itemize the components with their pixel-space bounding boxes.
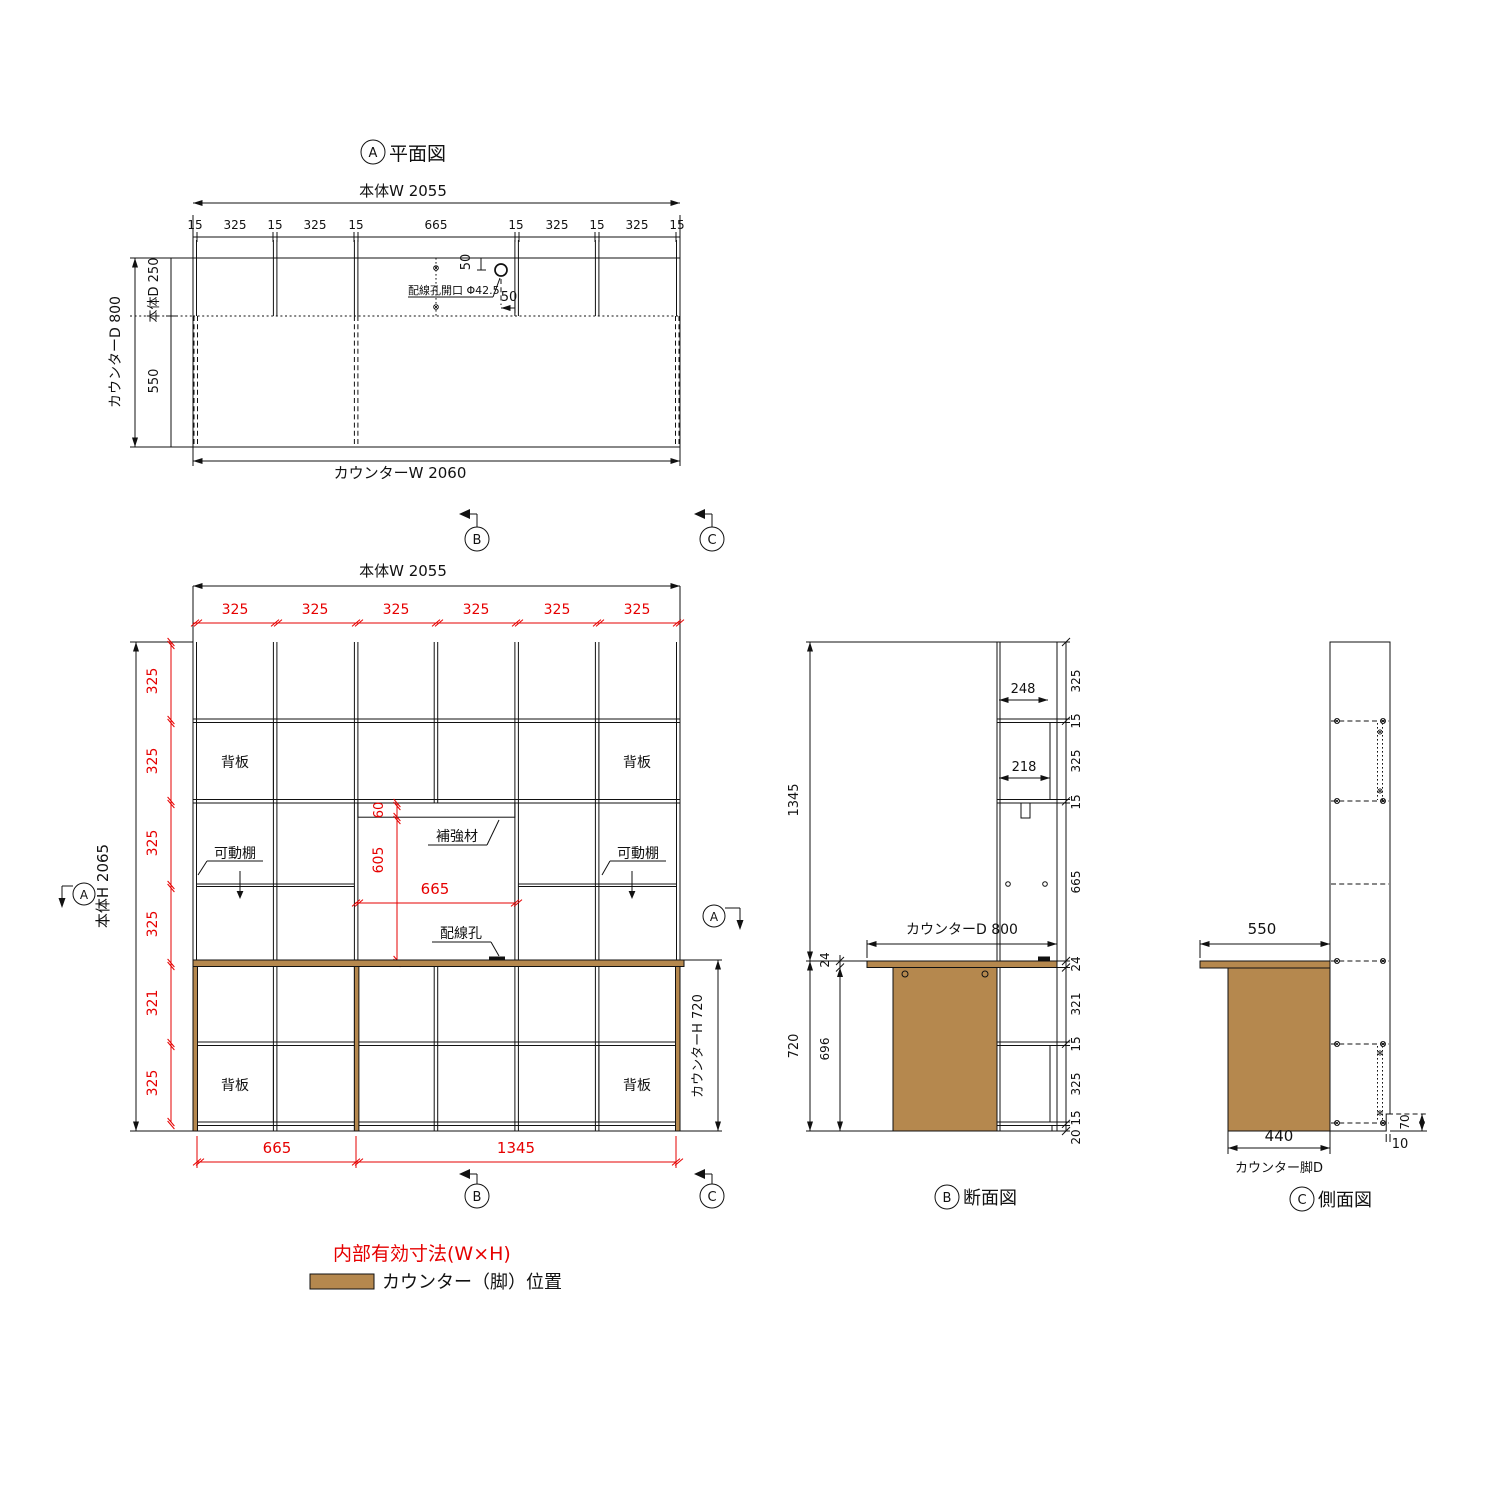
b-counter-leg <box>867 957 1057 1132</box>
svg-text:321: 321 <box>1069 993 1083 1016</box>
svg-text:325: 325 <box>383 602 410 618</box>
wiring-hole-opening-label: 配線孔開口 Φ42.5 <box>408 283 500 297</box>
counter-front-depth-dim: 550 <box>147 369 162 394</box>
svg-text:321: 321 <box>145 990 161 1017</box>
elev-section-markers: B C <box>459 1169 724 1208</box>
marker-a-right: A <box>710 910 719 924</box>
plan-title-text: 平面図 <box>389 143 446 165</box>
depth-218-dim: 218 <box>1012 760 1037 775</box>
plan-wiring-hole: 50 50 配線孔開口 Φ42.5 <box>408 254 517 313</box>
b-counter-depth: カウンターD 800 <box>867 922 1057 958</box>
bottom-right-dim: 1345 <box>497 1139 535 1157</box>
opening-width-dim: 665 <box>421 880 450 898</box>
c-overhang-value: 550 <box>1248 920 1277 938</box>
svg-text:15: 15 <box>1069 794 1083 809</box>
b-title-text: 断面図 <box>963 1188 1017 1209</box>
svg-text:325: 325 <box>302 602 329 618</box>
marker-a-right-arrow-icon <box>737 920 744 930</box>
section-b-view: 248 218 カウンターD 800 1345 720 24 696 <box>787 638 1083 1209</box>
wiring-hole-label: 配線孔 <box>440 926 482 942</box>
svg-text:665: 665 <box>425 218 448 232</box>
section-c-arrow-icon <box>694 509 705 519</box>
section-b-arrow2-icon <box>459 1169 470 1179</box>
c-counter-leg <box>1200 961 1330 1131</box>
b-title-letter: B <box>943 1191 952 1206</box>
section-c-marker2: C <box>707 1190 716 1205</box>
svg-text:15: 15 <box>1069 1036 1083 1051</box>
svg-text:325: 325 <box>1069 670 1083 693</box>
section-c-arrow2-icon <box>694 1169 705 1179</box>
plan-body-width-label: 本体W 2055 <box>359 182 447 200</box>
elev-wiring-hole: 配線孔 <box>432 926 505 961</box>
svg-text:325: 325 <box>546 218 569 232</box>
svg-text:325: 325 <box>1069 1073 1083 1096</box>
c-leg-depth-dim: 440 カウンター脚D <box>1228 1127 1330 1176</box>
svg-text:15: 15 <box>589 218 604 232</box>
legend: 内部有効寸法(W×H) カウンター（脚）位置 <box>310 1243 562 1293</box>
b-title: B 断面図 <box>935 1185 1017 1209</box>
marker-a-left-arrow-icon <box>59 898 66 908</box>
c-title-letter: C <box>1297 1193 1306 1208</box>
side-c-view: 550 440 カウンター脚D 70 10 C 側面図 <box>1200 642 1427 1211</box>
back-panel-label-4: 背板 <box>623 1078 651 1094</box>
plan-view: A 平面図 本体W 2055 15 325 15 325 15 665 15 3… <box>108 140 724 551</box>
svg-text:325: 325 <box>145 1070 161 1097</box>
plan-section-markers: B C <box>459 509 724 551</box>
c-notch-height-dim: 70 <box>1398 1114 1412 1129</box>
svg-text:15: 15 <box>508 218 523 232</box>
legend-counter-pos-note: カウンター（脚）位置 <box>382 1272 562 1293</box>
depth-248-dim: 248 <box>1011 682 1036 697</box>
drawing-sheet: A 平面図 本体W 2055 15 325 15 325 15 665 15 3… <box>0 0 1500 1500</box>
body-height-label: 本体H 2065 <box>94 844 112 928</box>
section-c-marker: C <box>707 533 716 548</box>
svg-text:325: 325 <box>145 830 161 857</box>
svg-text:325: 325 <box>463 602 490 618</box>
plan-depth-dims: カウンターD 800 本体D 250 550 <box>108 258 193 447</box>
back-panel-label-3: 背板 <box>221 1078 249 1094</box>
reinforcement-label: 補強材 <box>436 829 478 845</box>
front-elevation: 本体W 2055 325 325 325 325 325 325 <box>59 562 744 1208</box>
plan-hidden-legs <box>194 316 679 447</box>
elev-bottom-dims: 665 1345 <box>193 1136 683 1168</box>
b-column <box>997 642 1057 1131</box>
elev-counter-height: カウンターH 720 <box>680 960 722 1131</box>
svg-text:325: 325 <box>224 218 247 232</box>
svg-text:665: 665 <box>1069 871 1083 894</box>
b-upper-total-dim: 1345 <box>787 783 802 816</box>
c-leg-depth-label: カウンター脚D <box>1235 1160 1323 1176</box>
svg-text:325: 325 <box>145 748 161 775</box>
b-leg-h-dim: 696 <box>818 1038 832 1061</box>
marker-a-left: A <box>80 888 89 902</box>
opening-height-dim: 605 <box>371 847 387 874</box>
c-leg-depth-value: 440 <box>1265 1127 1294 1145</box>
svg-text:20: 20 <box>1069 1129 1083 1144</box>
movable-shelf-label-1: 可動棚 <box>214 846 256 862</box>
counter-width-label: カウンターW 2060 <box>334 464 467 482</box>
svg-text:325: 325 <box>304 218 327 232</box>
back-panel-label-1: 背板 <box>221 755 249 771</box>
svg-text:15: 15 <box>267 218 282 232</box>
b-wiring-hole-icon <box>1038 957 1050 962</box>
svg-text:325: 325 <box>1069 750 1083 773</box>
svg-text:325: 325 <box>145 668 161 695</box>
svg-text:325: 325 <box>624 602 651 618</box>
legend-counter-swatch <box>310 1274 374 1289</box>
svg-text:15: 15 <box>187 218 202 232</box>
svg-text:15: 15 <box>348 218 363 232</box>
c-side-panel <box>1330 642 1390 1131</box>
c-title-text: 側面図 <box>1318 1190 1372 1211</box>
section-b-marker: B <box>473 533 482 548</box>
elev-back-panels: 背板 背板 背板 背板 <box>197 723 677 1123</box>
svg-text:325: 325 <box>222 602 249 618</box>
technical-drawing: A 平面図 本体W 2055 15 325 15 325 15 665 15 3… <box>0 0 1500 1500</box>
b-counter-h-dim: 720 <box>787 1034 802 1059</box>
section-b-arrow-icon <box>459 509 470 519</box>
c-notch-depth-dim: 10 <box>1392 1137 1409 1152</box>
svg-text:325: 325 <box>145 911 161 938</box>
plan-counter-width: カウンターW 2060 <box>193 447 680 482</box>
elev-col-dims: 325 325 325 325 325 325 <box>222 602 651 618</box>
counter-depth-label: カウンターD 800 <box>108 296 124 408</box>
plan-chain-dims: 15 325 15 325 15 665 15 325 15 325 15 <box>187 218 684 232</box>
c-hidden-lines <box>1331 718 1389 1125</box>
hole-offset-top-dim: 50 <box>459 254 474 271</box>
c-notch-dims: 70 10 <box>1386 1114 1427 1152</box>
b-counter-t-dim: 24 <box>818 952 832 967</box>
elev-a-markers: A A <box>59 883 744 930</box>
movable-shelf-label-2: 可動棚 <box>617 846 659 862</box>
elev-left-dims: 本体H 2065 325 325 325 325 321 325 <box>94 638 193 1131</box>
back-panel-label-2: 背板 <box>623 755 651 771</box>
bottom-left-dim: 665 <box>263 1139 292 1157</box>
svg-text:15: 15 <box>1069 713 1083 728</box>
c-overhang-dim: 550 <box>1200 920 1330 958</box>
legend-inner-dim-note: 内部有効寸法(W×H) <box>333 1243 511 1265</box>
wiring-hole-icon <box>495 264 507 276</box>
reinforcement-height-dim: 60 <box>372 802 387 819</box>
body-depth-label: 本体D 250 <box>147 258 162 323</box>
svg-text:15: 15 <box>669 218 684 232</box>
svg-text:325: 325 <box>626 218 649 232</box>
svg-text:15: 15 <box>1069 1110 1083 1125</box>
plan-title: A 平面図 <box>361 140 446 165</box>
plan-title-letter: A <box>369 146 378 161</box>
section-b-marker2: B <box>473 1190 482 1205</box>
counter-height-label: カウンターH 720 <box>691 994 706 1098</box>
svg-text:325: 325 <box>544 602 571 618</box>
elev-body-width-label: 本体W 2055 <box>359 562 447 580</box>
b-counter-depth-label: カウンターD 800 <box>906 922 1018 938</box>
svg-text:24: 24 <box>1069 956 1083 971</box>
b-right-chain: 325 15 325 15 665 24 321 15 325 15 20 <box>1057 638 1083 1145</box>
elev-shelves <box>193 719 680 1131</box>
c-title: C 側面図 <box>1290 1187 1372 1211</box>
